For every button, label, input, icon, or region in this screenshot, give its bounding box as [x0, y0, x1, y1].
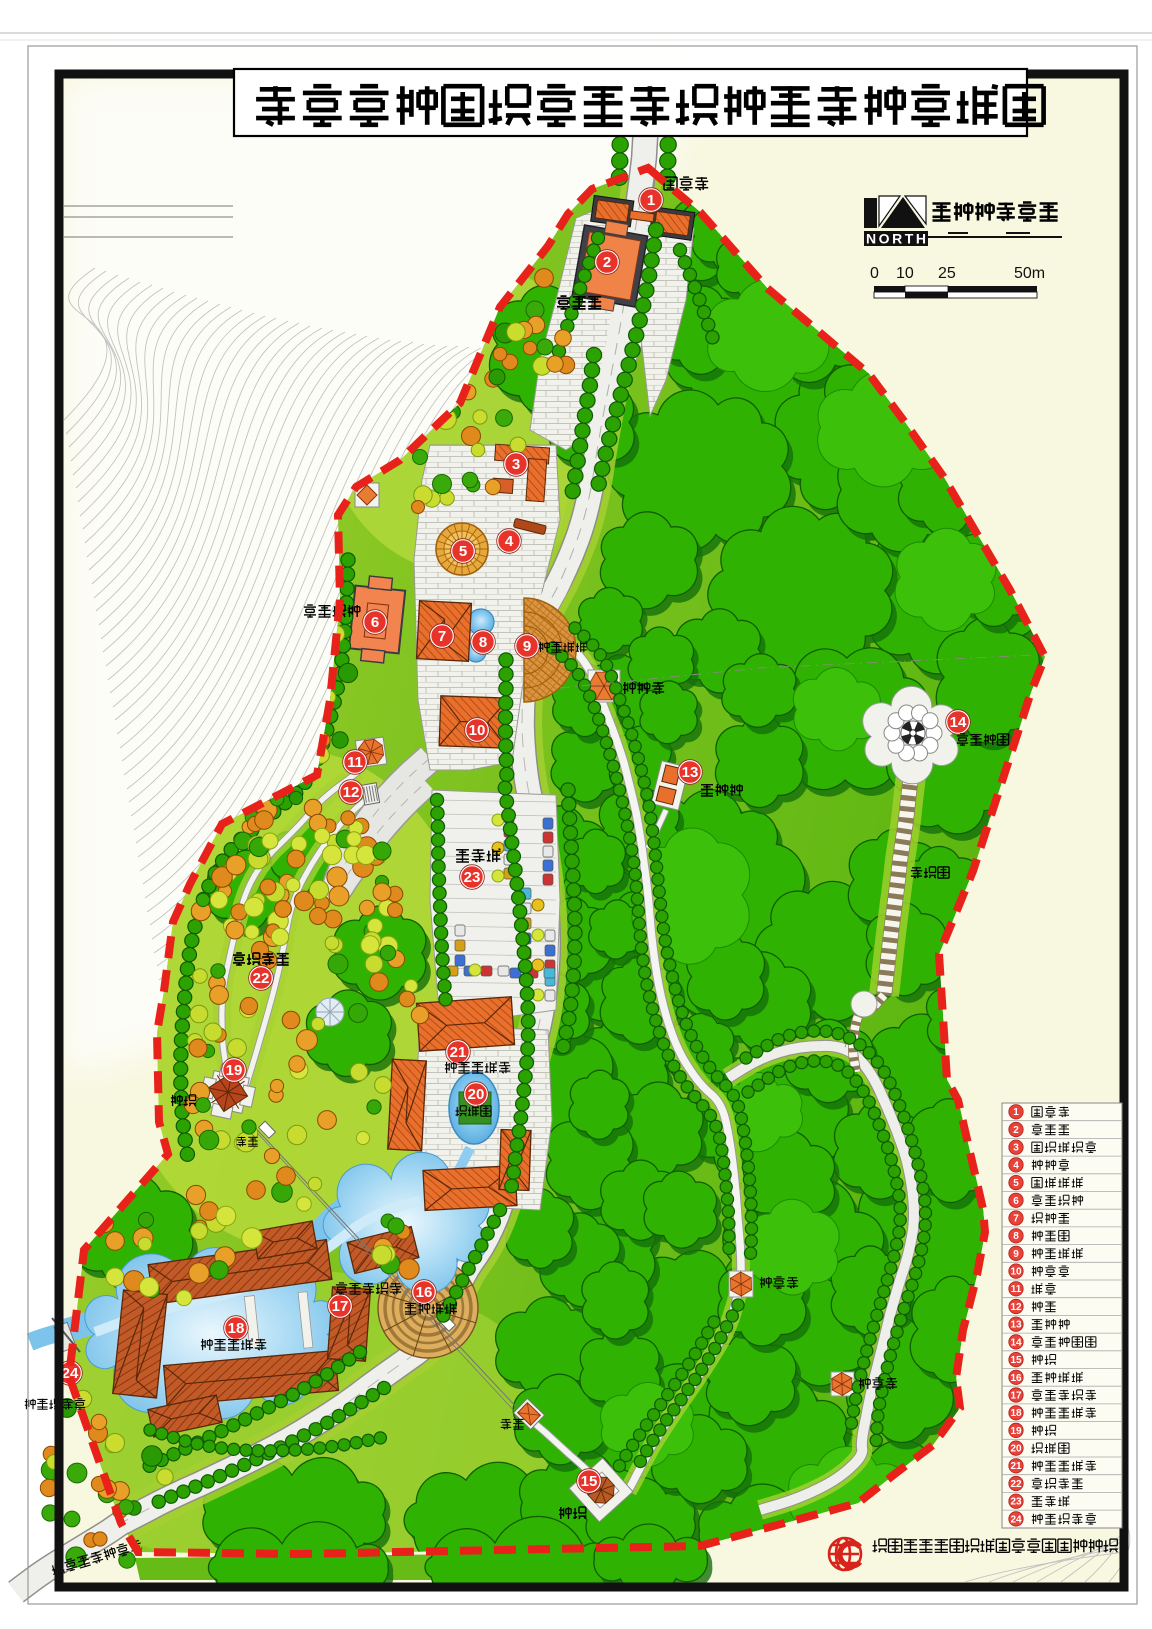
svg-text:10: 10 [896, 265, 914, 282]
svg-text:2: 2 [1013, 1125, 1019, 1136]
svg-text:6: 6 [1013, 1196, 1019, 1207]
svg-text:11: 11 [1011, 1284, 1022, 1295]
svg-text:NORTH: NORTH [866, 231, 926, 247]
svg-text:12: 12 [1010, 1302, 1022, 1313]
svg-text:22: 22 [253, 970, 270, 987]
svg-text:21: 21 [450, 1044, 467, 1061]
svg-text:1: 1 [647, 192, 655, 209]
svg-text:19: 19 [226, 1062, 243, 1079]
svg-text:16: 16 [416, 1284, 433, 1301]
svg-text:22: 22 [1010, 1479, 1022, 1490]
svg-text:19: 19 [1010, 1426, 1022, 1437]
svg-text:8: 8 [1013, 1231, 1019, 1242]
svg-text:2: 2 [603, 254, 611, 271]
svg-text:17: 17 [332, 1298, 349, 1315]
svg-text:12: 12 [343, 784, 360, 801]
svg-text:10: 10 [1010, 1267, 1022, 1278]
svg-text:50m: 50m [1014, 265, 1045, 282]
svg-text:3: 3 [1013, 1143, 1019, 1154]
svg-text:11: 11 [347, 754, 363, 771]
svg-text:23: 23 [464, 869, 481, 886]
svg-text:21: 21 [1010, 1461, 1022, 1472]
svg-text:4: 4 [505, 533, 514, 550]
svg-text:4: 4 [1013, 1160, 1019, 1171]
svg-text:18: 18 [228, 1320, 245, 1337]
svg-text:15: 15 [581, 1473, 598, 1490]
svg-text:24: 24 [1010, 1514, 1022, 1525]
svg-text:0: 0 [870, 265, 879, 282]
svg-text:13: 13 [1010, 1320, 1022, 1331]
svg-text:7: 7 [438, 628, 446, 645]
svg-text:5: 5 [459, 543, 467, 560]
svg-text:25: 25 [938, 265, 956, 282]
svg-text:9: 9 [523, 638, 531, 655]
svg-text:10: 10 [469, 722, 486, 739]
svg-text:23: 23 [1010, 1497, 1022, 1508]
svg-text:7: 7 [1013, 1214, 1019, 1225]
svg-text:14: 14 [950, 714, 967, 731]
svg-text:15: 15 [1010, 1355, 1022, 1366]
svg-text:16: 16 [1010, 1373, 1022, 1384]
svg-text:20: 20 [468, 1086, 485, 1103]
svg-text:5: 5 [1013, 1178, 1019, 1189]
svg-text:14: 14 [1010, 1337, 1022, 1348]
svg-text:3: 3 [512, 456, 520, 473]
svg-text:6: 6 [371, 614, 379, 631]
svg-text:8: 8 [479, 634, 487, 651]
svg-text:17: 17 [1010, 1391, 1022, 1402]
svg-text:20: 20 [1010, 1444, 1022, 1455]
svg-text:1: 1 [1013, 1107, 1019, 1118]
svg-text:9: 9 [1013, 1249, 1019, 1260]
svg-text:13: 13 [682, 764, 699, 781]
svg-text:18: 18 [1010, 1408, 1022, 1419]
